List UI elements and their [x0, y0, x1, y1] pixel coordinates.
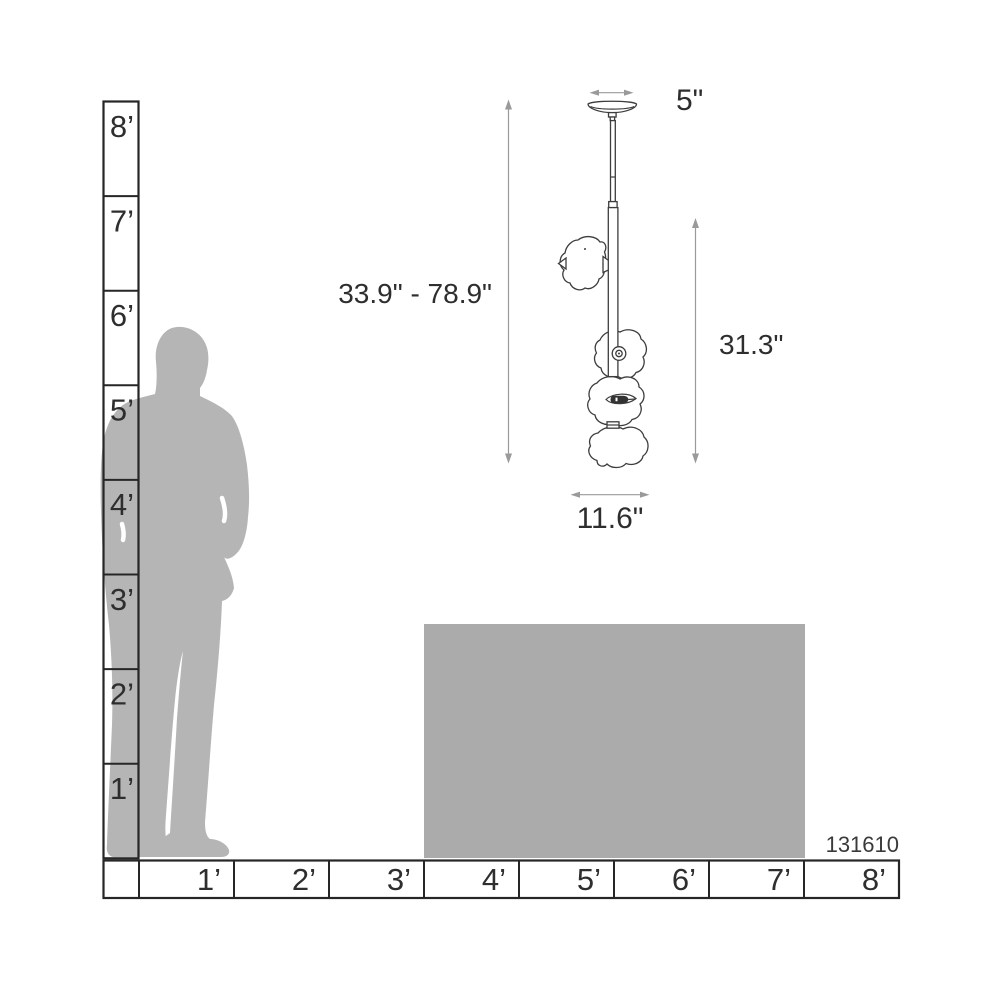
horizontal-ruler-label-8ft: 8’ — [862, 862, 886, 897]
canopy-collar — [609, 113, 617, 117]
arrow-up-icon — [692, 218, 699, 228]
canopy-width-label: 5" — [676, 84, 703, 117]
dimension-diagram-page: 8’ 7’ 6’ 5’ 4’ 3’ 2’ 1’ 1’ 2’ 3’ 4’ 5’ 6… — [0, 0, 1000, 1000]
canopy-dish — [588, 101, 637, 112]
horizontal-ruler-label-7ft: 7’ — [767, 862, 791, 897]
shade-1-dot — [584, 248, 586, 250]
dimension-annotations: 33.9" - 78.9" 31.3" 5" 11.6" — [338, 84, 783, 535]
socket-center-dot — [618, 353, 620, 355]
vertical-ruler-label-5ft: 5’ — [110, 393, 134, 428]
arrow-right-icon — [624, 90, 634, 96]
arrow-left-icon — [590, 90, 600, 96]
silhouette-sleeve-slit — [122, 524, 124, 540]
horizontal-ruler-label-1ft: 1’ — [197, 862, 221, 897]
shade-connector — [607, 422, 619, 428]
vertical-ruler-label-3ft: 3’ — [110, 582, 134, 617]
vertical-ruler-label-2ft: 2’ — [110, 677, 134, 712]
vertical-ruler-label-8ft: 8’ — [110, 109, 134, 144]
pendant-shade-1 — [559, 237, 611, 290]
fixture-height-dimension: 31.3" — [692, 218, 783, 464]
horizontal-ruler-label-4ft: 4’ — [482, 862, 506, 897]
stem-coupler — [609, 202, 617, 208]
pendant-drawing — [559, 101, 649, 467]
horizontal-ruler-label-2ft: 2’ — [292, 862, 316, 897]
horizontal-ruler-label-3ft: 3’ — [387, 862, 411, 897]
arrow-up-icon — [505, 100, 512, 110]
horizontal-ruler-label-5ft: 5’ — [577, 862, 601, 897]
arrow-down-icon — [505, 454, 512, 464]
bulb-tip-line — [628, 399, 636, 400]
vertical-ruler-label-7ft: 7’ — [110, 204, 134, 239]
product-code: 131610 — [826, 832, 899, 857]
vertical-ruler-label-4ft: 4’ — [110, 487, 134, 522]
horizontal-ruler-label-6ft: 6’ — [672, 862, 696, 897]
fixture-width-label: 11.6" — [577, 502, 644, 535]
stem-upper-rod — [611, 121, 616, 202]
vertical-ruler-label-6ft: 6’ — [110, 298, 134, 333]
overall-height-label: 33.9" - 78.9" — [338, 278, 492, 309]
shade-1-glass — [560, 237, 606, 290]
pendant-canopy — [588, 101, 637, 120]
fixture-height-label: 31.3" — [719, 329, 783, 360]
pendant-stem — [609, 121, 617, 208]
overall-height-dimension: 33.9" - 78.9" — [338, 100, 512, 464]
bulb-body — [611, 396, 628, 403]
vertical-ruler-label-1ft: 1’ — [110, 771, 134, 806]
arrow-right-icon — [640, 492, 650, 498]
fixture-width-dimension: 11.6" — [571, 492, 650, 535]
pendant-shade-4 — [589, 427, 648, 468]
table-scale-rect — [424, 624, 805, 858]
arrow-down-icon — [692, 454, 699, 464]
arrow-left-icon — [571, 492, 581, 498]
bulb-highlight — [616, 398, 618, 402]
dimension-diagram: 8’ 7’ 6’ 5’ 4’ 3’ 2’ 1’ 1’ 2’ 3’ 4’ 5’ 6… — [0, 0, 1000, 1000]
horizontal-ruler: 1’ 2’ 3’ 4’ 5’ 6’ 7’ 8’ — [104, 861, 900, 899]
shade-2-socket — [612, 347, 626, 361]
